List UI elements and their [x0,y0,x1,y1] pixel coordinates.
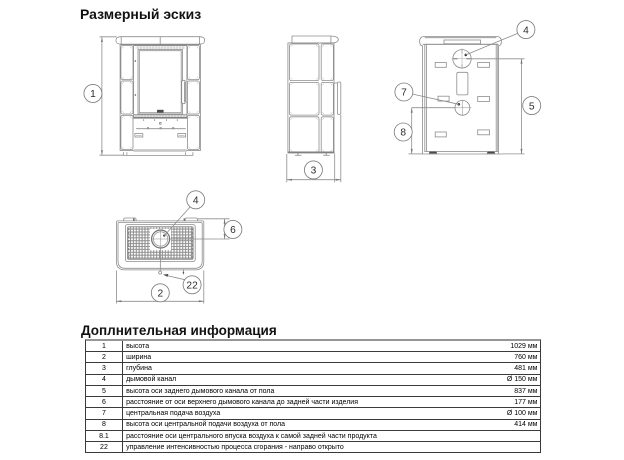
svg-text:1: 1 [90,89,96,100]
svg-text:2: 2 [157,289,163,300]
svg-text:8: 8 [400,128,406,139]
svg-text:4: 4 [193,196,199,207]
svg-text:3: 3 [311,166,317,177]
svg-text:4: 4 [523,25,529,36]
svg-text:7: 7 [401,88,407,99]
svg-text:5: 5 [529,101,535,112]
svg-text:6: 6 [230,225,236,236]
svg-text:22: 22 [186,281,198,292]
